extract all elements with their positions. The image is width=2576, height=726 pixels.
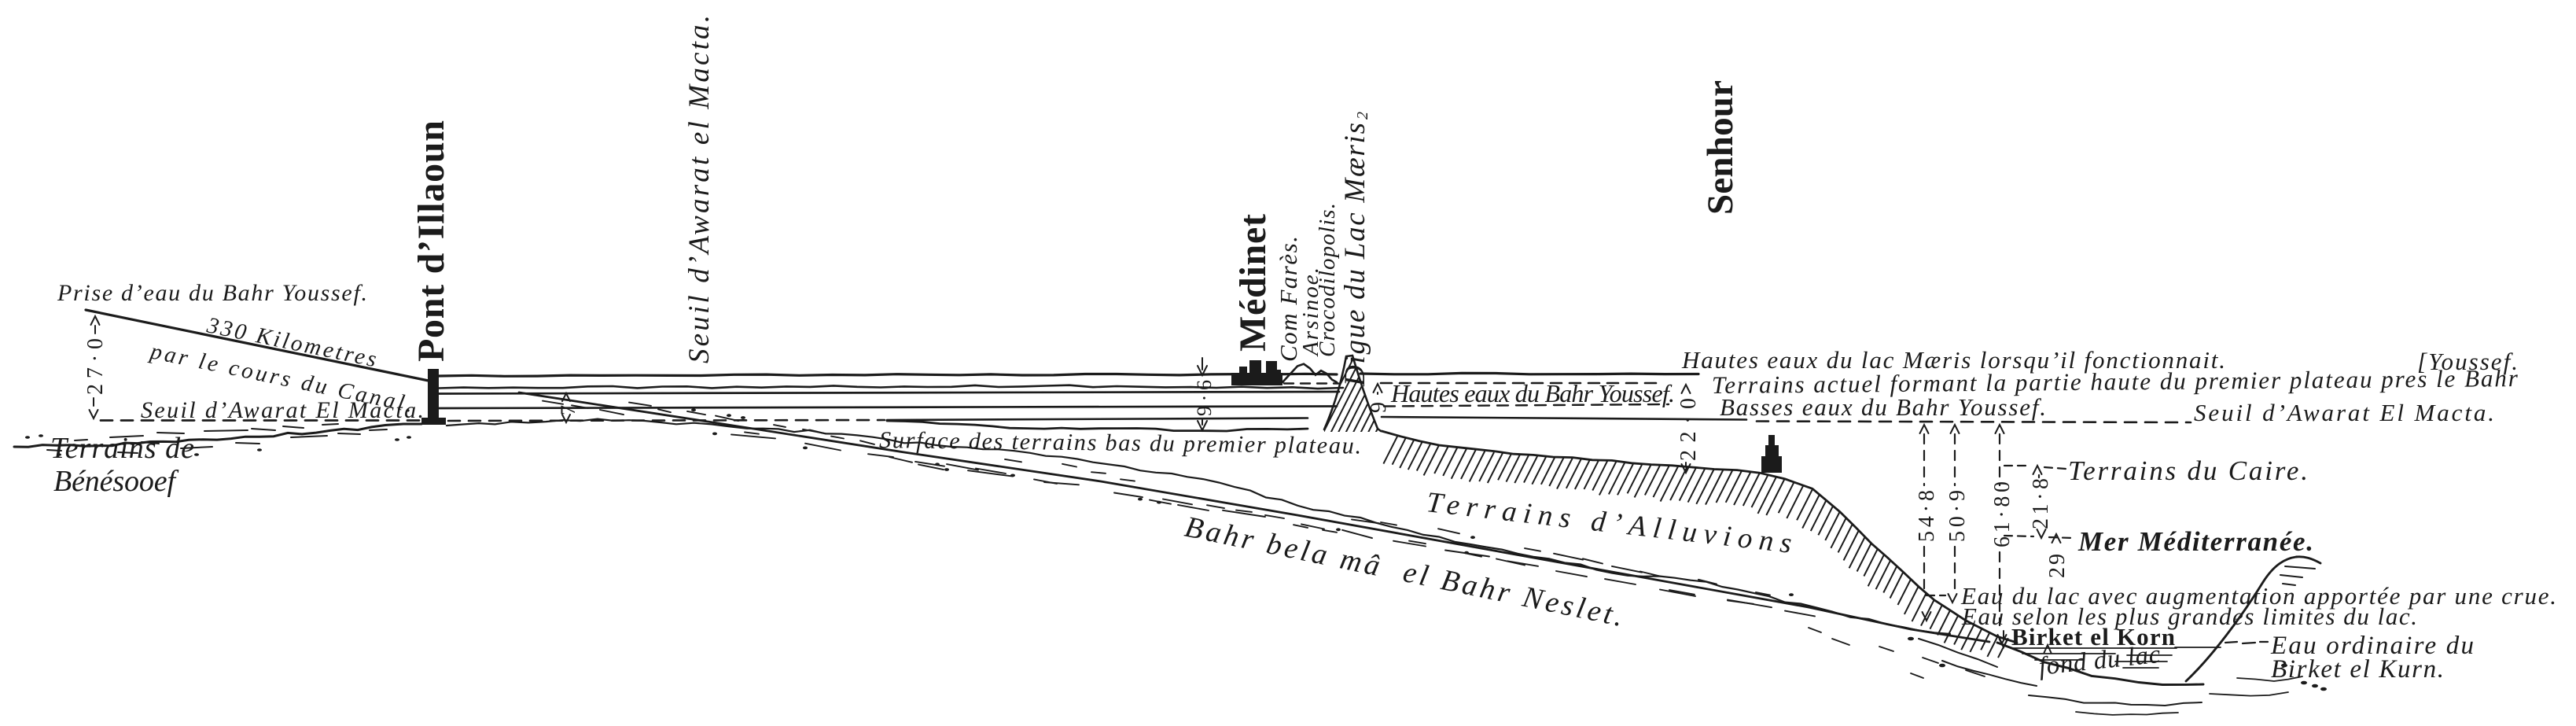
svg-text:Seuil d’Awarat El Macta.: Seuil d’Awarat El Macta. bbox=[2194, 399, 2494, 426]
svg-text:9: 9 bbox=[1367, 402, 1391, 413]
svg-text:2: 2 bbox=[1354, 112, 1371, 120]
svg-text:Digue du Lac Mæris: Digue du Lac Mæris bbox=[1339, 123, 1371, 387]
svg-text:Hautes eaux du Bahr Youssef.: Hautes eaux du Bahr Youssef. bbox=[1390, 379, 1675, 407]
svg-text:Terrains du Caire.: Terrains du Caire. bbox=[2068, 455, 2308, 486]
svg-text:21·8: 21·8 bbox=[2029, 478, 2053, 529]
svg-text:Crocodilopolis.: Crocodilopolis. bbox=[1315, 203, 1340, 357]
svg-text:61·80: 61·80 bbox=[1990, 481, 2015, 547]
svg-text:Prise d’eau du Bahr Youssef.: Prise d’eau du Bahr Youssef. bbox=[57, 280, 367, 306]
svg-text:Senhour: Senhour bbox=[1700, 80, 1741, 215]
svg-text:9·6: 9·6 bbox=[1193, 380, 1216, 416]
svg-text:Seuil d’Awarat El Macta.: Seuil d’Awarat El Macta. bbox=[141, 397, 424, 423]
svg-text:Médinet: Médinet bbox=[1232, 214, 1274, 352]
svg-text:Bénésooef: Bénésooef bbox=[53, 465, 178, 498]
svg-text:Basses eaux du Bahr Youssef.: Basses eaux du Bahr Youssef. bbox=[1720, 393, 2046, 421]
svg-text:Pont d’Illaoun: Pont d’Illaoun bbox=[410, 120, 452, 362]
svg-text:Mer Méditerranée.: Mer Méditerranée. bbox=[2077, 526, 2313, 557]
svg-text:Birket el Kurn.: Birket el Kurn. bbox=[2271, 655, 2444, 684]
